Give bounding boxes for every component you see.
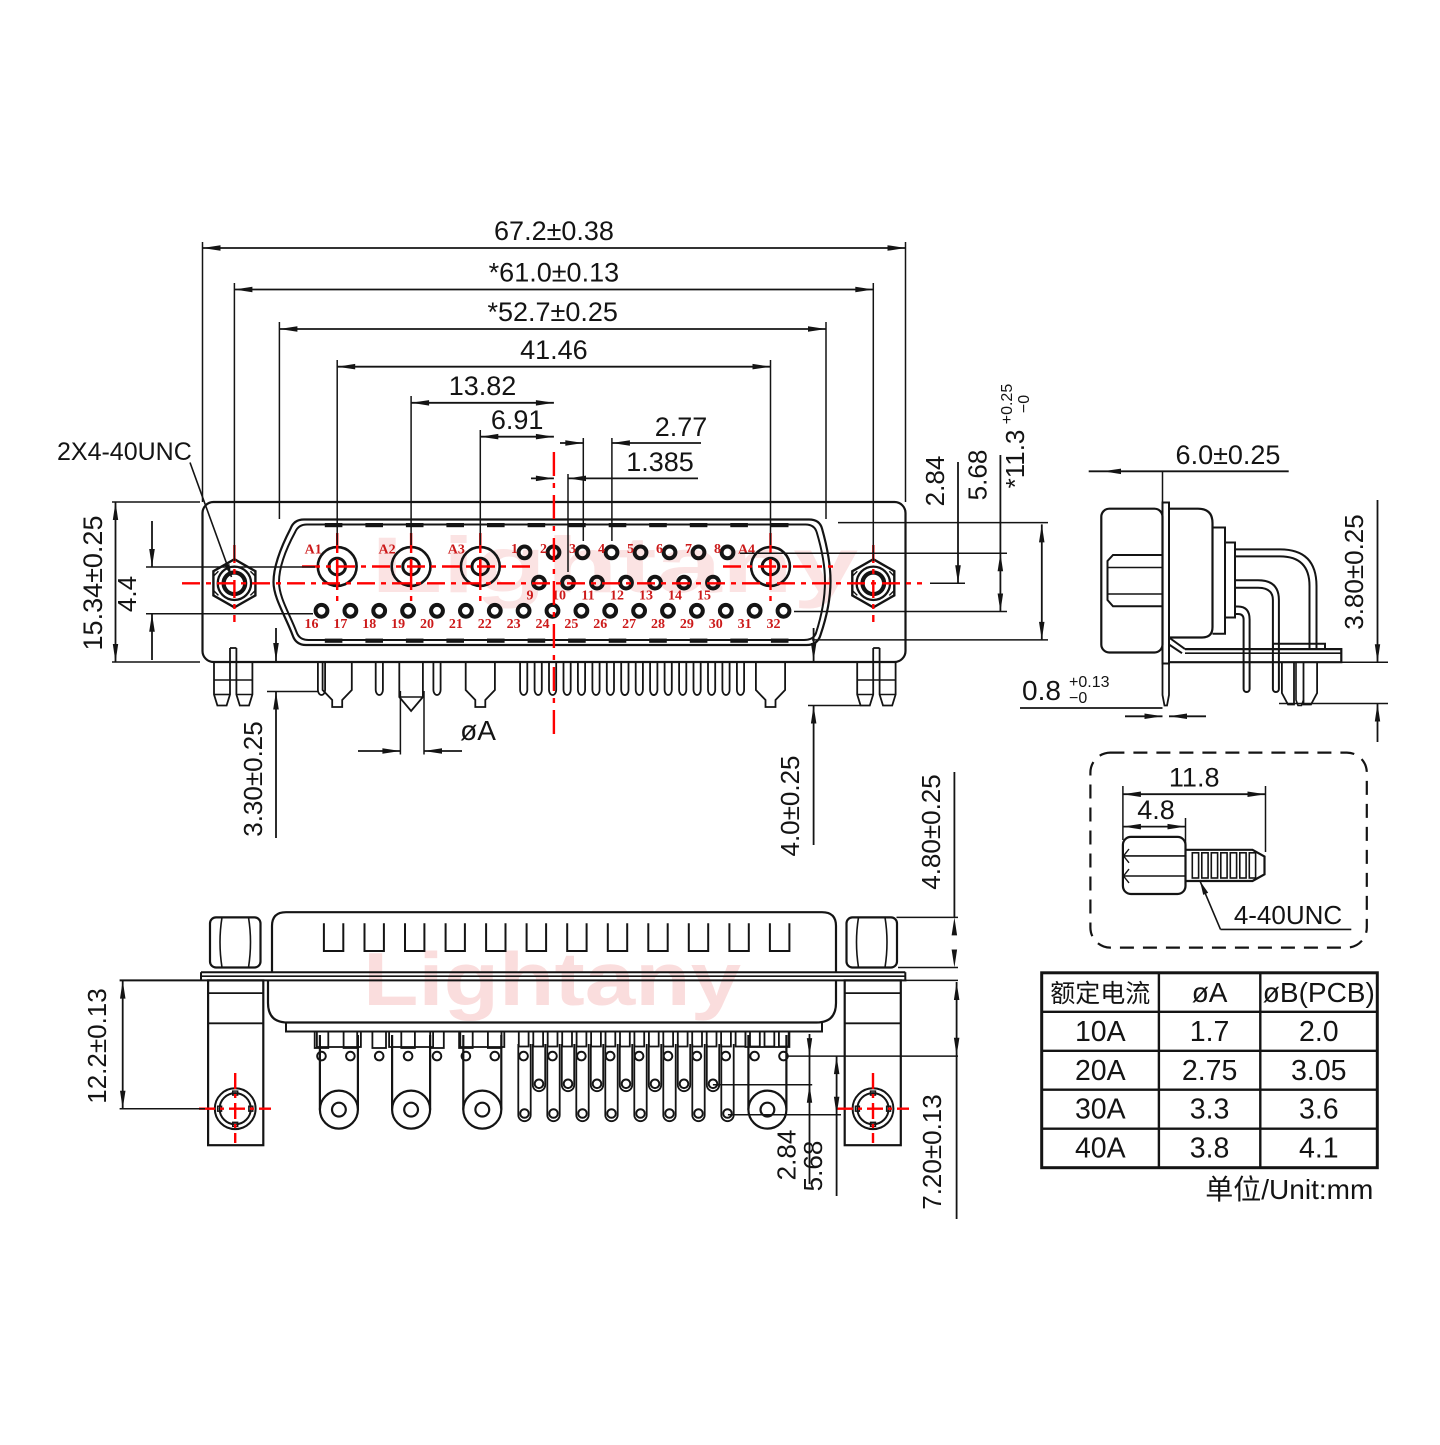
svg-text:2.84: 2.84 bbox=[920, 456, 950, 507]
svg-text:29: 29 bbox=[680, 617, 694, 632]
svg-text:22: 22 bbox=[478, 617, 492, 632]
svg-text:+0.25: +0.25 bbox=[999, 384, 1016, 425]
svg-text:13: 13 bbox=[639, 589, 653, 604]
svg-text:3.3: 3.3 bbox=[1190, 1094, 1230, 1126]
svg-text:Lightany: Lightany bbox=[363, 937, 741, 1021]
svg-text:3.05: 3.05 bbox=[1291, 1055, 1346, 1087]
svg-text:øB(PCB): øB(PCB) bbox=[1263, 977, 1375, 1008]
svg-text:+0.13: +0.13 bbox=[1069, 674, 1110, 691]
svg-text:41.46: 41.46 bbox=[520, 335, 588, 365]
svg-text:2.84: 2.84 bbox=[772, 1130, 802, 1181]
svg-text:2: 2 bbox=[540, 542, 547, 557]
svg-text:0.8: 0.8 bbox=[1022, 675, 1061, 706]
svg-text:6.0±0.25: 6.0±0.25 bbox=[1176, 440, 1281, 470]
svg-text:1.385: 1.385 bbox=[626, 447, 694, 477]
svg-text:3.30±0.25: 3.30±0.25 bbox=[238, 721, 268, 836]
svg-text:11: 11 bbox=[581, 589, 594, 604]
svg-text:12.2±0.13: 12.2±0.13 bbox=[82, 988, 112, 1103]
svg-text:øA: øA bbox=[1192, 977, 1228, 1008]
svg-text:2.75: 2.75 bbox=[1182, 1055, 1237, 1087]
svg-text:12: 12 bbox=[610, 589, 624, 604]
svg-text:18: 18 bbox=[362, 617, 376, 632]
svg-text:9: 9 bbox=[527, 589, 534, 604]
svg-text:23: 23 bbox=[507, 617, 521, 632]
svg-text:67.2±0.38: 67.2±0.38 bbox=[494, 216, 614, 246]
svg-text:5.68: 5.68 bbox=[963, 450, 993, 501]
svg-text:31: 31 bbox=[738, 617, 752, 632]
svg-text:A3: A3 bbox=[448, 543, 465, 558]
svg-text:A2: A2 bbox=[379, 543, 396, 558]
svg-text:4.1: 4.1 bbox=[1299, 1133, 1339, 1165]
svg-text:19: 19 bbox=[391, 617, 405, 632]
svg-text:2X4-40UNC: 2X4-40UNC bbox=[57, 438, 192, 466]
svg-text:30A: 30A bbox=[1075, 1094, 1126, 1126]
svg-text:单位/Unit:mm: 单位/Unit:mm bbox=[1205, 1174, 1373, 1205]
svg-text:32: 32 bbox=[767, 617, 781, 632]
svg-text:3: 3 bbox=[569, 542, 576, 557]
svg-text:15: 15 bbox=[697, 589, 711, 604]
svg-text:6.91: 6.91 bbox=[491, 405, 544, 435]
svg-text:21: 21 bbox=[449, 617, 463, 632]
svg-text:额定电流: 额定电流 bbox=[1050, 980, 1150, 1008]
svg-text:*52.7±0.25: *52.7±0.25 bbox=[487, 297, 617, 327]
svg-text:2.0: 2.0 bbox=[1299, 1016, 1339, 1048]
svg-text:17: 17 bbox=[333, 617, 347, 632]
svg-text:A4: A4 bbox=[738, 543, 755, 558]
svg-text:13.82: 13.82 bbox=[449, 371, 517, 401]
svg-text:15.34±0.25: 15.34±0.25 bbox=[78, 516, 108, 651]
svg-text:11.8: 11.8 bbox=[1169, 763, 1220, 793]
svg-text:40A: 40A bbox=[1075, 1133, 1126, 1165]
svg-text:8: 8 bbox=[714, 542, 721, 557]
svg-text:5.68: 5.68 bbox=[798, 1141, 828, 1192]
svg-text:7.20±0.13: 7.20±0.13 bbox=[917, 1094, 947, 1209]
svg-text:*61.0±0.13: *61.0±0.13 bbox=[489, 258, 619, 288]
svg-text:20A: 20A bbox=[1075, 1055, 1126, 1087]
svg-text:4-40UNC: 4-40UNC bbox=[1234, 900, 1342, 930]
svg-text:10A: 10A bbox=[1075, 1016, 1126, 1048]
svg-text:20: 20 bbox=[420, 617, 434, 632]
svg-text:1: 1 bbox=[511, 542, 518, 557]
svg-text:1.7: 1.7 bbox=[1190, 1016, 1230, 1048]
svg-text:6: 6 bbox=[656, 542, 663, 557]
svg-text:3.6: 3.6 bbox=[1299, 1094, 1339, 1126]
svg-text:4.4: 4.4 bbox=[112, 576, 142, 612]
svg-text:26: 26 bbox=[593, 617, 607, 632]
svg-text:16: 16 bbox=[305, 617, 319, 632]
svg-text:28: 28 bbox=[651, 617, 665, 632]
svg-text:4.80±0.25: 4.80±0.25 bbox=[916, 774, 946, 889]
svg-text:4.8: 4.8 bbox=[1137, 795, 1175, 825]
svg-text:27: 27 bbox=[622, 617, 636, 632]
svg-text:3.80±0.25: 3.80±0.25 bbox=[1339, 514, 1369, 629]
svg-text:−0: −0 bbox=[1016, 395, 1033, 413]
svg-text:7: 7 bbox=[685, 542, 692, 557]
svg-text:−0: −0 bbox=[1069, 690, 1087, 707]
svg-text:A1: A1 bbox=[305, 543, 322, 558]
svg-text:4.0±0.25: 4.0±0.25 bbox=[775, 755, 805, 856]
svg-text:øA: øA bbox=[460, 715, 496, 746]
svg-text:4: 4 bbox=[598, 542, 605, 557]
svg-text:25: 25 bbox=[564, 617, 578, 632]
svg-text:30: 30 bbox=[709, 617, 723, 632]
svg-text:5: 5 bbox=[627, 542, 634, 557]
svg-text:3.8: 3.8 bbox=[1190, 1133, 1230, 1165]
svg-text:2.77: 2.77 bbox=[655, 412, 708, 442]
svg-text:24: 24 bbox=[536, 617, 550, 632]
svg-text:*11.3: *11.3 bbox=[1000, 430, 1030, 489]
svg-text:14: 14 bbox=[668, 589, 682, 604]
